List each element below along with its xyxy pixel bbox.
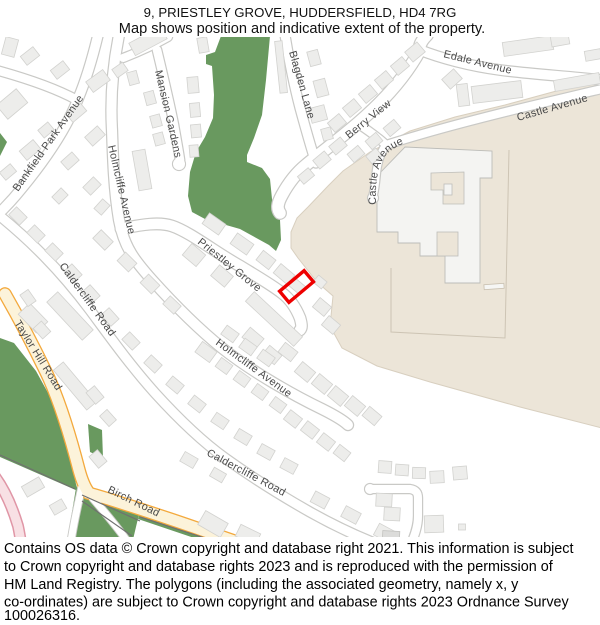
svg-text:to Crown copyright and databas: to Crown copyright and database rights 2… (4, 559, 554, 575)
svg-text:HM Land Registry. The polygons: HM Land Registry. The polygons (includin… (4, 577, 519, 593)
svg-text:9, PRIESTLEY GROVE, HUDDERSFIE: 9, PRIESTLEY GROVE, HUDDERSFIELD, HD4 7R… (144, 5, 457, 20)
svg-text:Map shows position and indicat: Map shows position and indicative extent… (119, 21, 485, 37)
svg-text:co-ordinates) are subject to C: co-ordinates) are subject to Crown copyr… (4, 595, 570, 611)
svg-text:Contains OS data © Crown copyr: Contains OS data © Crown copyright and d… (4, 541, 573, 557)
svg-text:100026316.: 100026316. (4, 608, 80, 624)
